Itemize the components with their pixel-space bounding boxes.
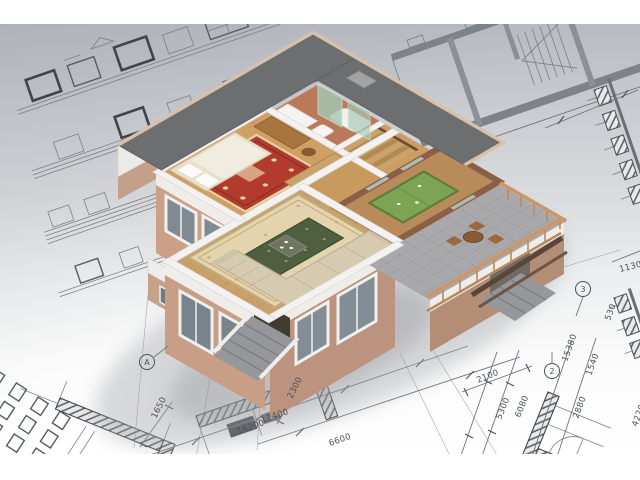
svg-text:2: 2 xyxy=(549,367,554,376)
svg-text:A: A xyxy=(144,358,150,367)
architectural-render-scene: 1650 16200 12400 2300 6600 2100 5300 608… xyxy=(0,0,640,480)
letterbox-top xyxy=(0,0,640,24)
svg-text:3: 3 xyxy=(580,285,585,294)
scene-canvas: 1650 16200 12400 2300 6600 2100 5300 608… xyxy=(0,0,640,480)
letterbox-bottom xyxy=(0,454,640,480)
